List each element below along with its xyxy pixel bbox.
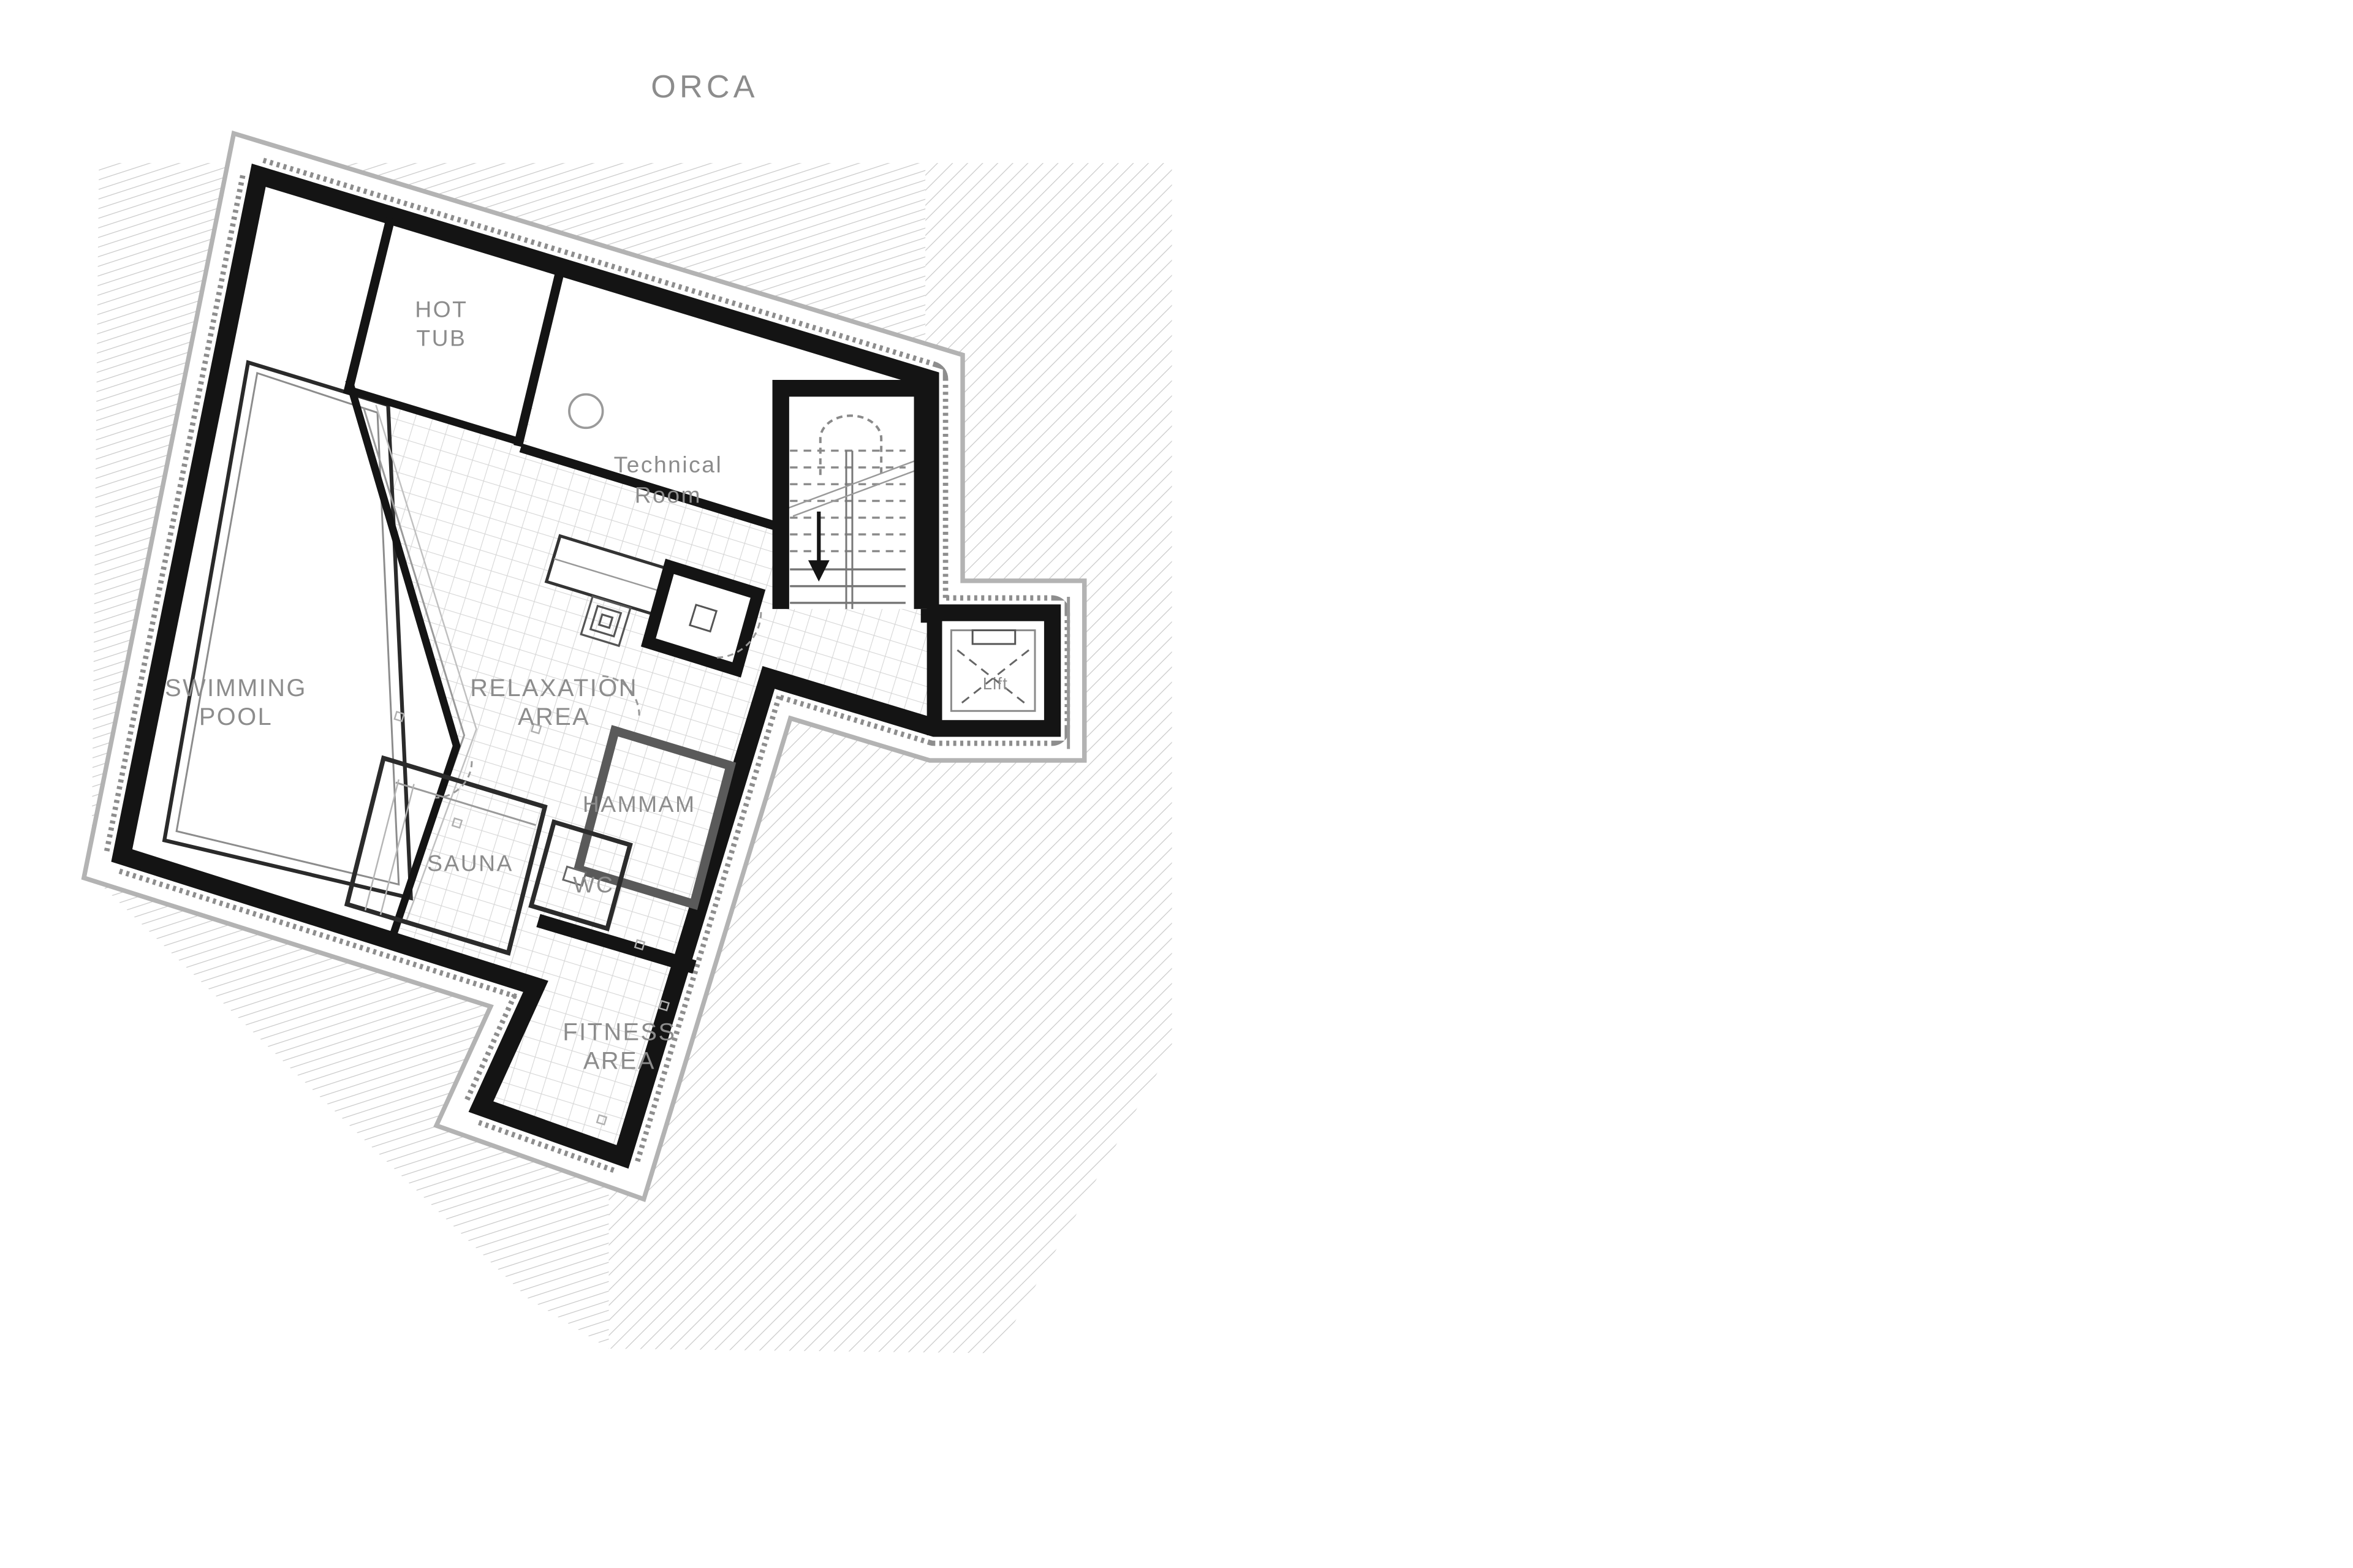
floor-plan-page: ORCA HOT TUB Technical Room SWIMMING POO…	[0, 0, 2353, 1568]
plan-title: ORCA	[651, 69, 759, 105]
floor-plan-canvas: ORCA HOT TUB Technical Room SWIMMING POO…	[0, 0, 2353, 1568]
svg-text:Room: Room	[635, 482, 702, 508]
svg-text:POOL: POOL	[199, 703, 273, 730]
svg-text:SWIMMING: SWIMMING	[165, 675, 307, 702]
svg-text:FITNESS: FITNESS	[563, 1018, 676, 1045]
lift-door	[972, 631, 1015, 644]
lift-shaft	[934, 597, 1069, 749]
room-label-lift: Lift	[983, 674, 1008, 693]
staircase	[773, 381, 930, 609]
svg-text:RELAXATION: RELAXATION	[470, 675, 638, 702]
svg-text:AREA: AREA	[583, 1048, 656, 1075]
svg-text:HOT: HOT	[415, 297, 468, 322]
svg-text:AREA: AREA	[518, 703, 590, 730]
svg-text:TUB: TUB	[416, 325, 466, 351]
room-label-hammam: HAMMAM	[583, 791, 696, 817]
room-label-wc: WC	[573, 871, 614, 897]
room-label-sauna: SAUNA	[427, 850, 513, 876]
svg-text:Technical: Technical	[614, 452, 723, 477]
